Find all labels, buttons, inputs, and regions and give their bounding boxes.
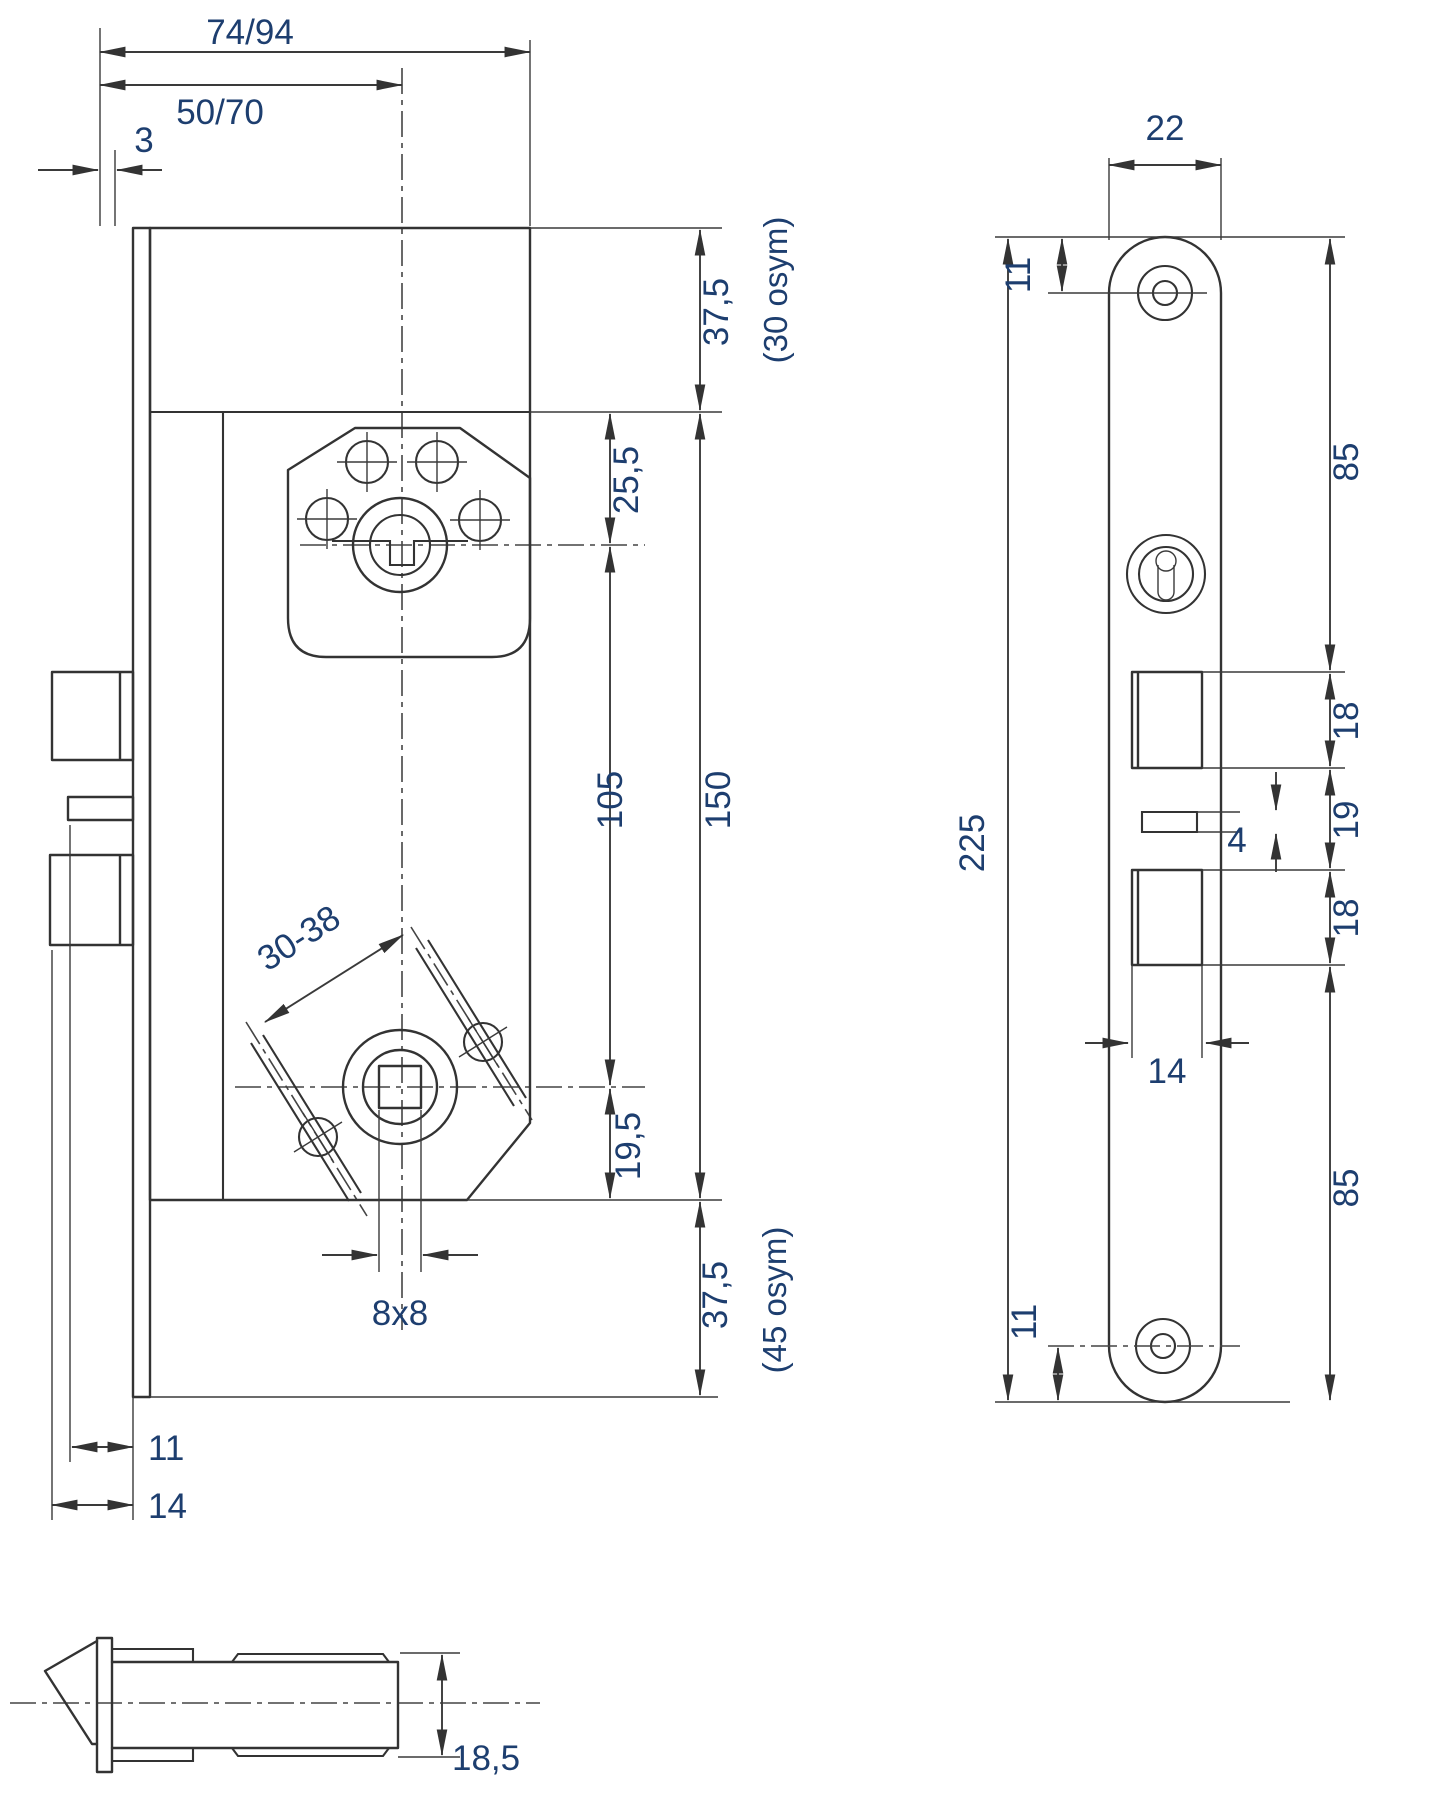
lock-drawing: 74/94 50/70 3 37,5 (30 osym) 25,5 105 15…: [0, 0, 1432, 1800]
dim-screw-top-offset: 11: [999, 257, 1038, 293]
dim-case-depth: 74/94: [206, 13, 294, 52]
dim-top-extension: 37,5: [697, 278, 736, 346]
dim-screw-bottom-offset: 11: [1005, 1304, 1044, 1340]
latch-bevel: [45, 1641, 97, 1744]
dimension-lines-front: [1008, 165, 1330, 1400]
case-inner-edges: [150, 412, 530, 1200]
deadbolt-cutout: [1132, 870, 1202, 965]
case-lips: [112, 1649, 193, 1761]
dim-cylinder-offset: 25,5: [607, 446, 646, 514]
latch-bolt: [52, 672, 133, 760]
dim-aux-slot-height: 4: [1227, 821, 1246, 860]
dim-faceplate-stand-off: 3: [134, 121, 153, 160]
dim-faceplate-width: 22: [1146, 109, 1185, 148]
faceplate-outline: [1109, 237, 1221, 1402]
deadbolt: [50, 855, 133, 945]
dim-bolt-to-bottom: 85: [1327, 1169, 1366, 1208]
dim-bolt-cutout-height: 18: [1327, 899, 1366, 938]
dim-top-to-latch: 85: [1327, 443, 1366, 482]
faceplate-screw-top: [1048, 266, 1207, 320]
dim-spindle-positions: 30-38: [251, 898, 347, 979]
top-view: 18,5: [10, 1638, 540, 1778]
dim-cylinder-to-spindle: 105: [591, 771, 630, 829]
dim-spindle-offset-bottom: 19,5: [609, 1112, 648, 1180]
spindle-arm-screws: [294, 1018, 507, 1161]
lock-case-outline: [150, 228, 530, 1200]
dim-latch-throw: 11: [148, 1429, 184, 1468]
faceplate-cylinder-hole: [1127, 535, 1205, 613]
case-cover-section: [232, 1654, 389, 1756]
dim-bolt-throw: 14: [148, 1487, 187, 1526]
dim-top-extension-alt: (30 osym): [757, 217, 794, 364]
aux-bolt-slot: [1142, 812, 1197, 832]
faceplate-screw-bottom: [1048, 1319, 1240, 1373]
dim-case-height: 150: [699, 771, 738, 829]
dim-latch-to-bolt-gap: 19: [1327, 801, 1366, 840]
dim-case-thickness: 18,5: [452, 1739, 520, 1778]
latch-cutout: [1132, 672, 1202, 768]
faceplate-section: [97, 1638, 112, 1772]
faceplate-side: [133, 228, 150, 1397]
dim-backset: 50/70: [176, 93, 264, 132]
escutcheon-screw-holes: [297, 432, 510, 550]
dim-spindle-hole: 8x8: [372, 1294, 428, 1333]
case-body-section: [112, 1662, 398, 1748]
extension-lines-front: [995, 158, 1345, 1402]
dim-bottom-extension: 37,5: [696, 1261, 735, 1329]
dim-cutout-width: 14: [1148, 1052, 1187, 1091]
dim-bottom-extension-alt: (45 osym): [756, 1227, 793, 1374]
front-view: 22 11 225 85 18 4 19 18 14 85 11: [953, 109, 1366, 1402]
dim-faceplate-length: 225: [953, 814, 992, 872]
extension-lines-bottom: [398, 1653, 460, 1757]
drawing-sheet: 74/94 50/70 3 37,5 (30 osym) 25,5 105 15…: [0, 0, 1432, 1800]
side-view: 74/94 50/70 3 37,5 (30 osym) 25,5 105 15…: [38, 13, 794, 1526]
auxiliary-bolt: [68, 797, 133, 820]
dim-latch-cutout-height: 18: [1327, 702, 1366, 741]
